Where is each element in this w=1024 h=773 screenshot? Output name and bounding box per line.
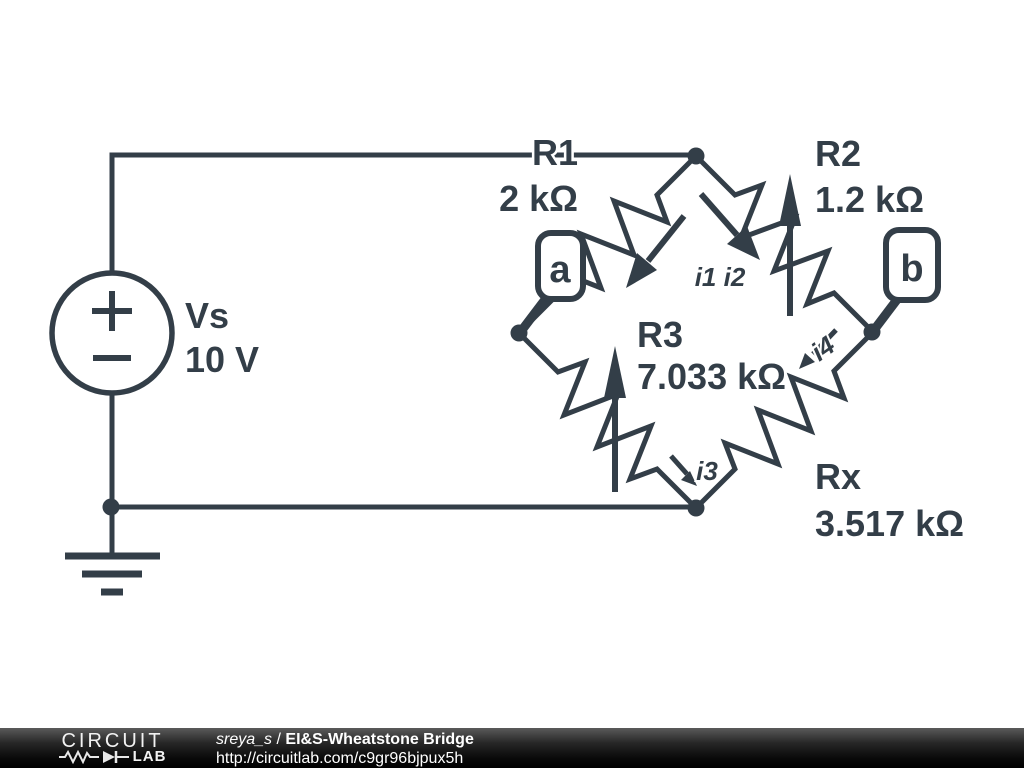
node-a-label: a xyxy=(549,249,571,291)
current-label-i3: i3 xyxy=(696,456,718,486)
current-arrow-i2 xyxy=(701,194,760,260)
arrowhead xyxy=(604,346,626,398)
schematic-title: EI&S-Wheatstone Bridge xyxy=(285,731,473,748)
resistor-r1: R1 2 kΩ xyxy=(499,132,696,333)
r3-value-label: 7.033 kΩ xyxy=(637,356,786,397)
current-label-i1-i2: i1 i2 xyxy=(695,262,746,292)
flag-tail xyxy=(522,297,547,330)
node-b-label: b xyxy=(900,248,923,290)
current-arrow-i3 xyxy=(671,456,697,486)
node-flag-b: b xyxy=(874,230,938,330)
r3-name-label: R3 xyxy=(637,314,683,355)
circuitlab-logo: CIRCUIT LAB xyxy=(45,731,180,765)
source-name-label: Vs xyxy=(185,295,229,336)
junction-dot-a xyxy=(511,325,528,342)
arrowhead xyxy=(779,174,801,226)
circuitlab-export-page: Vs 10 V R1 2 kΩ R2 1.2 kΩ R3 7.033 kΩ Rx… xyxy=(0,0,1024,768)
node-flag-a: a xyxy=(522,233,583,330)
resistor-diode-icon xyxy=(59,750,131,764)
r1-name-label: R1 xyxy=(532,132,578,173)
credit-line: sreya_s / EI&S-Wheatstone Bridge xyxy=(216,730,474,749)
junction-dot-bottom xyxy=(688,500,705,517)
junction-dot-ground xyxy=(103,499,120,516)
logo-lab-text: LAB xyxy=(133,748,167,765)
r1-value-label: 2 kΩ xyxy=(499,178,578,219)
circuitlab-footer-bar: CIRCUIT LAB sreya_s / EI&S-Wheatstone Br… xyxy=(0,728,1024,768)
schematic-url[interactable]: http://circuitlab.com/c9gr96bjpux5h xyxy=(216,749,474,768)
wire-top xyxy=(112,155,696,273)
rx-value-label: 3.517 kΩ xyxy=(815,503,964,544)
r2-value-label: 1.2 kΩ xyxy=(815,179,924,220)
rx-name-label: Rx xyxy=(815,456,861,497)
ground-symbol xyxy=(65,556,160,592)
author-name: sreya_s xyxy=(216,731,272,748)
junction-dot-b xyxy=(864,324,881,341)
credit-separator: / xyxy=(276,731,280,748)
resistor-r3: R3 7.033 kΩ xyxy=(519,314,786,508)
r2-name-label: R2 xyxy=(815,133,861,174)
junction-dot-top xyxy=(688,148,705,165)
voltage-source-vs: Vs 10 V xyxy=(52,273,259,393)
arrowhead xyxy=(799,353,815,369)
wheatstone-bridge-schematic: Vs 10 V R1 2 kΩ R2 1.2 kΩ R3 7.033 kΩ Rx… xyxy=(0,0,1024,768)
credit-block: sreya_s / EI&S-Wheatstone Bridge http://… xyxy=(216,730,474,768)
source-value-label: 10 V xyxy=(185,339,259,380)
